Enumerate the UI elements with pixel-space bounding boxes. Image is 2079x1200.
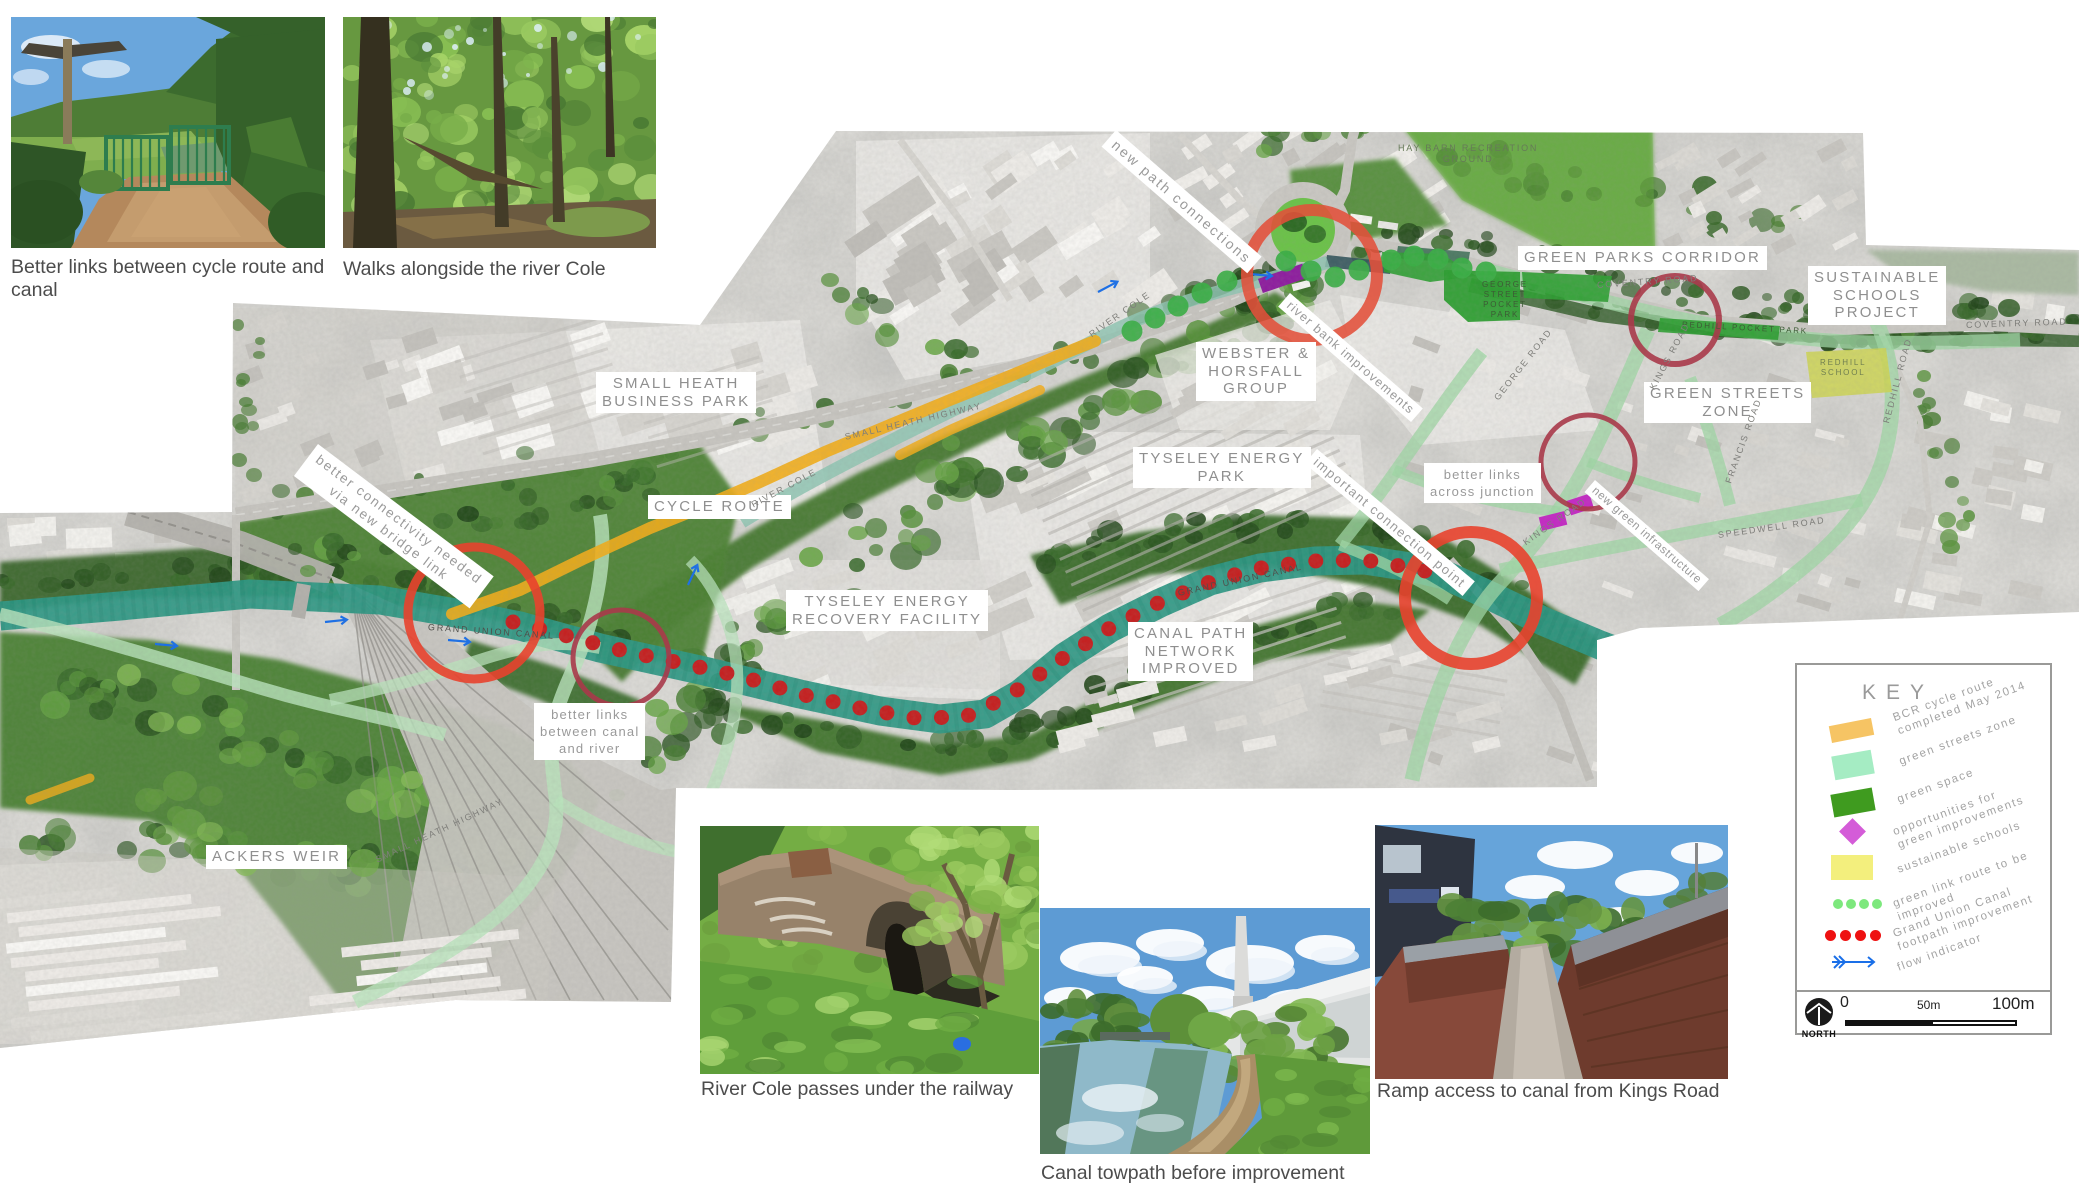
svg-text:NORTH: NORTH [1802, 1029, 1837, 1039]
